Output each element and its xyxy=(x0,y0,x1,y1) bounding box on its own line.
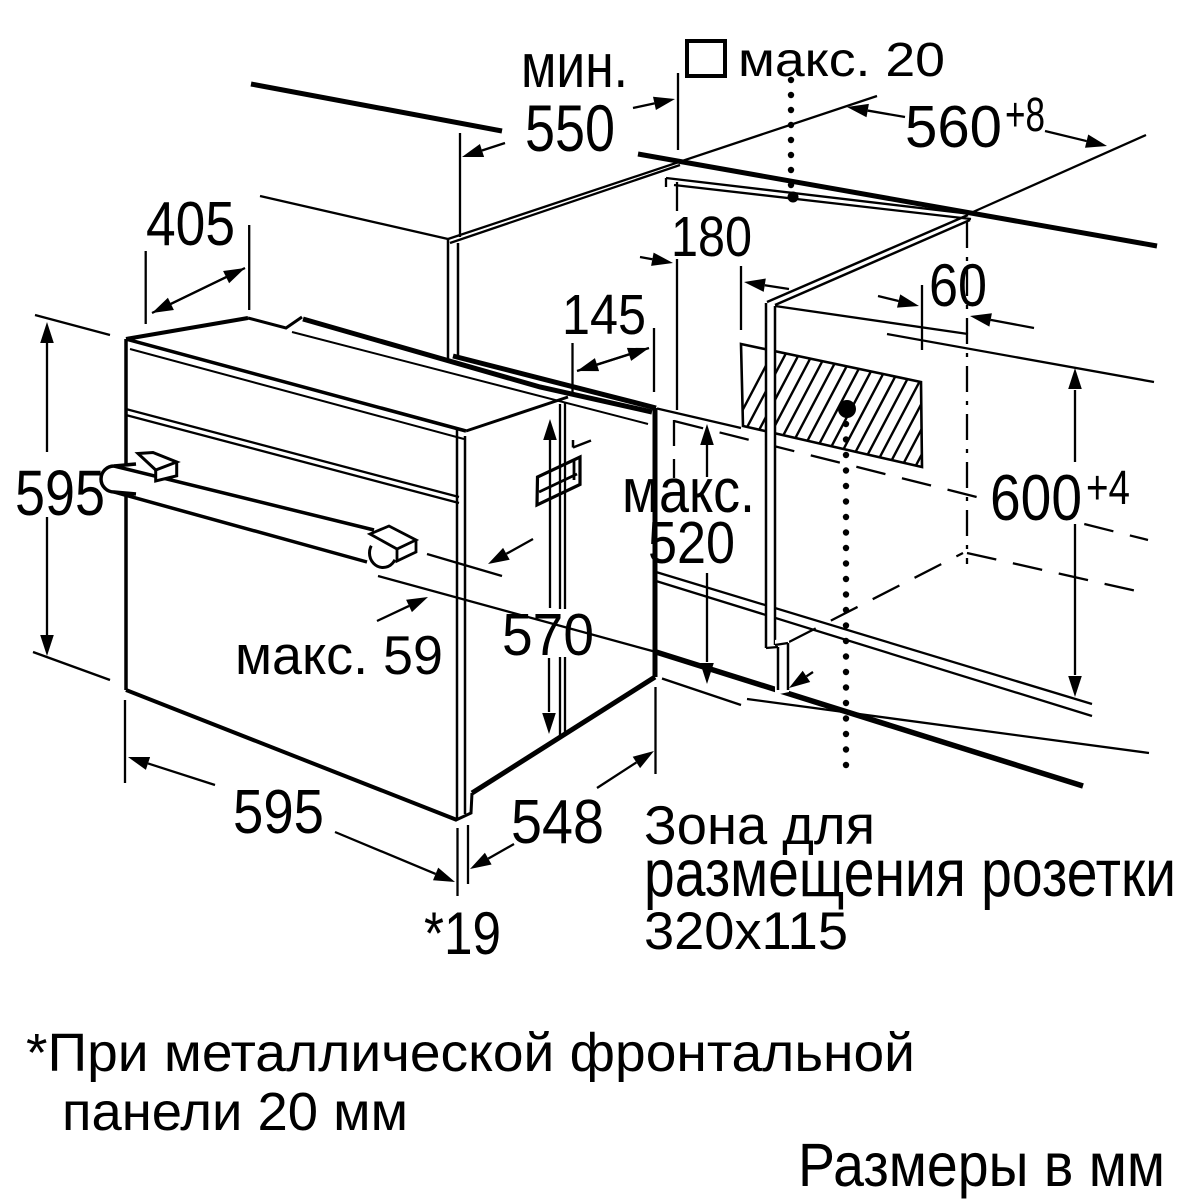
svg-text:550: 550 xyxy=(525,91,615,165)
svg-text:макс. 59: макс. 59 xyxy=(235,624,443,686)
svg-text:*При металлической фронтальной: *При металлической фронтальной xyxy=(26,1023,915,1083)
svg-text:548: 548 xyxy=(511,788,604,857)
svg-text:520: 520 xyxy=(648,510,735,576)
svg-text:405: 405 xyxy=(146,190,235,259)
svg-text:60: 60 xyxy=(929,252,987,319)
svg-text:макс. 20: макс. 20 xyxy=(738,34,945,87)
svg-text:панели 20 мм: панели 20 мм xyxy=(62,1082,408,1142)
svg-text:*19: *19 xyxy=(424,900,501,967)
svg-text:560: 560 xyxy=(905,94,1002,160)
svg-text:размещения розетки: размещения розетки xyxy=(644,836,1176,911)
svg-text:595: 595 xyxy=(233,778,324,847)
svg-text:Размеры в мм: Размеры в мм xyxy=(798,1131,1165,1199)
svg-text:+8: +8 xyxy=(1005,89,1045,142)
svg-text:595: 595 xyxy=(15,457,105,529)
svg-text:180: 180 xyxy=(671,205,752,269)
svg-text:+4: +4 xyxy=(1086,462,1130,515)
svg-text:600: 600 xyxy=(990,461,1082,534)
svg-text:570: 570 xyxy=(502,602,594,668)
svg-text:320x115: 320x115 xyxy=(644,902,848,961)
svg-text:145: 145 xyxy=(562,283,646,347)
